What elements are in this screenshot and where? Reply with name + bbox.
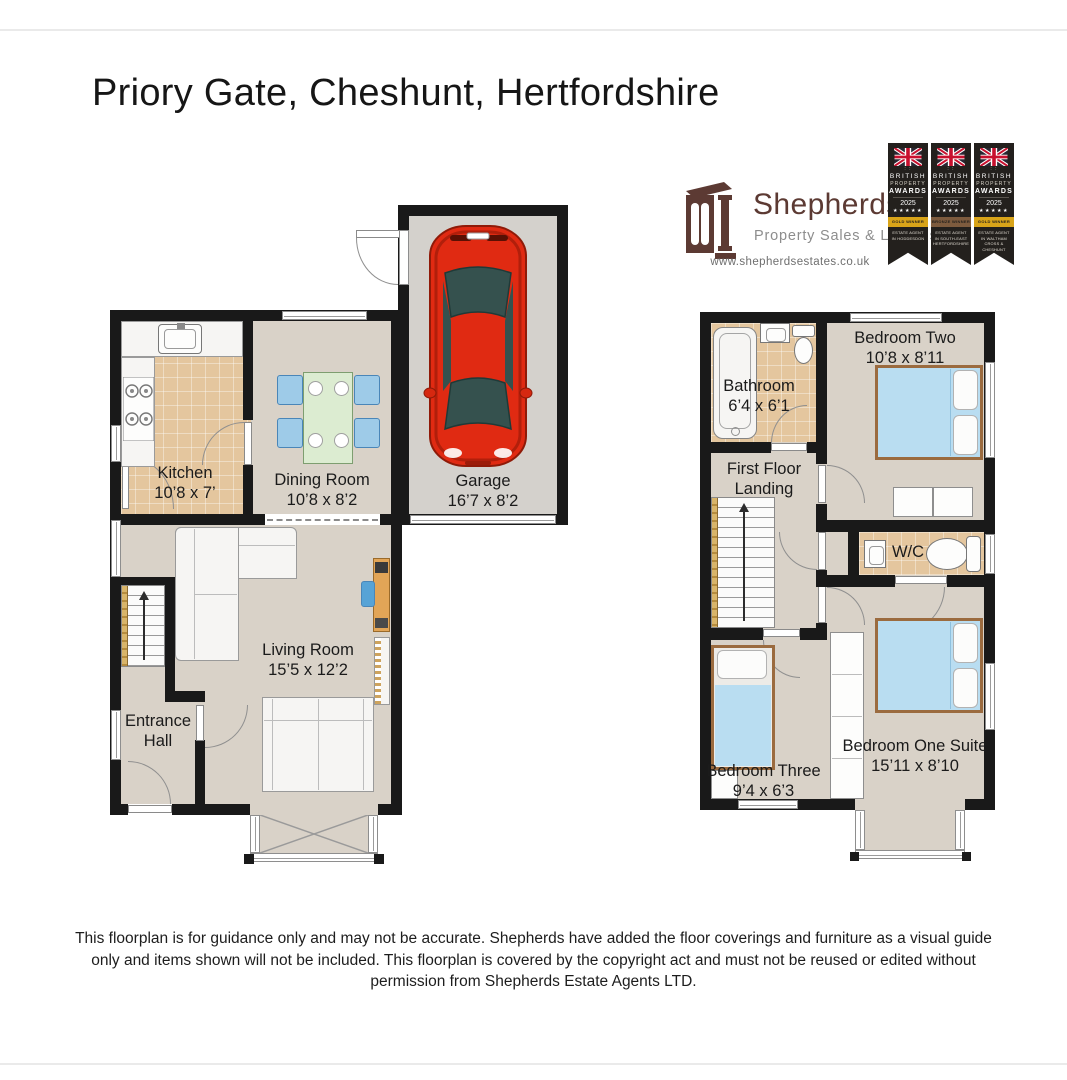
dining-chair	[354, 418, 380, 448]
union-jack-icon	[980, 148, 1008, 166]
door	[771, 443, 807, 451]
ribbon-level: GOLD WINNER	[888, 217, 928, 227]
ribbon-org-line: AWARDS	[888, 188, 928, 195]
toilet-bowl	[794, 337, 813, 364]
wall	[398, 205, 568, 216]
place-setting	[308, 381, 323, 396]
wc-sink	[864, 540, 886, 568]
wall	[700, 628, 763, 640]
window	[985, 534, 995, 574]
ribbon-org-line: AWARDS	[931, 188, 971, 195]
door	[818, 532, 826, 570]
room-dims: 10’8 x 7’	[125, 483, 245, 503]
ribbon-dots: : :	[931, 167, 971, 171]
wall	[700, 312, 995, 323]
staircase	[711, 497, 775, 628]
ribbon-dots: : :	[974, 167, 1014, 171]
ribbon-org-line: BRITISH	[974, 173, 1014, 180]
duvet-fold	[950, 369, 951, 456]
bathroom-label: Bathroom 6’4 x 6’1	[700, 376, 818, 417]
wall	[378, 804, 402, 815]
disclaimer-text: This floorplan is for guidance only and …	[71, 928, 996, 993]
pillow	[953, 415, 978, 455]
bay-window-post	[855, 810, 865, 850]
bottom-divider	[0, 1063, 1067, 1065]
wall	[165, 691, 205, 702]
wall	[850, 852, 859, 861]
bathroom-sink	[760, 323, 790, 343]
sofa-cushion-line	[194, 594, 237, 595]
room-name: Garage	[398, 471, 568, 491]
dining-chair	[277, 418, 303, 448]
door	[244, 422, 252, 465]
room-name: Bedroom Three	[700, 761, 827, 781]
room-name: W/C	[886, 542, 930, 562]
ribbon-region: ESTATE AGENT IN WALTHAM CROSS & CHESHUNT	[974, 230, 1014, 253]
place-setting	[308, 433, 323, 448]
ribbon-level: GOLD WINNER	[974, 217, 1014, 227]
room-name: Bedroom Two	[830, 328, 980, 348]
agency-name: Shepherds	[753, 188, 902, 222]
sink-basin	[766, 328, 786, 342]
place-setting	[334, 433, 349, 448]
bay-window-post	[955, 810, 965, 850]
pillow	[953, 370, 978, 410]
bay-window-sill	[855, 850, 965, 859]
garage-door	[410, 515, 556, 524]
wall	[244, 854, 254, 864]
pillow	[953, 668, 978, 708]
wall	[110, 577, 173, 585]
sofa-cushion-line	[318, 699, 319, 790]
room-dims: 10’8 x 8’11	[830, 348, 980, 368]
pillow	[953, 623, 978, 663]
open-plan-divider	[265, 514, 380, 525]
door	[818, 585, 826, 623]
first-floor-plan: Bathroom 6’4 x 6’1 Bedroom Two 10’8 x 8’…	[700, 312, 1000, 872]
room-dims: 9’4 x 6’3	[700, 781, 827, 801]
entrance-hall-label: Entrance Hall	[112, 711, 204, 752]
room-name: Bathroom	[700, 376, 818, 396]
union-jack-icon	[937, 148, 965, 166]
duvet	[715, 685, 771, 766]
ribbon-org-line: PROPERTY	[888, 181, 928, 187]
door	[763, 629, 800, 637]
union-jack-icon	[894, 148, 922, 166]
window	[282, 311, 367, 320]
ribbon-level: BRONZE WINNER	[931, 217, 971, 227]
door	[356, 230, 400, 238]
desk-equipment	[375, 618, 388, 628]
bedroom-three-label: Bedroom Three 9’4 x 6’3	[700, 761, 827, 802]
sofa	[262, 697, 374, 792]
door-swing	[356, 238, 398, 285]
room-name: Kitchen	[125, 463, 245, 483]
pillow	[717, 650, 767, 679]
room-name: Bedroom One Suite	[840, 736, 990, 756]
bath-drain	[731, 427, 740, 436]
ribbon-stars: ★★★★★	[931, 208, 971, 214]
stair-direction-arrow	[143, 600, 145, 660]
sink-basin	[869, 546, 884, 565]
toilet-cistern	[966, 536, 981, 572]
duvet-fold	[950, 622, 951, 709]
window	[111, 520, 121, 577]
wall	[243, 321, 253, 420]
dining-room-label: Dining Room 10’8 x 8’2	[252, 470, 392, 511]
wc-label: W/C	[886, 542, 930, 562]
bay-window-floor	[855, 799, 965, 850]
wall	[816, 575, 895, 587]
garage-label: Garage 16’7 x 8’2	[398, 471, 568, 512]
room-dims: 16’7 x 8’2	[398, 491, 568, 511]
wall	[800, 628, 827, 640]
ground-floor-plan: Kitchen 10’8 x 7’ Dining Room 10’8 x 8’2…	[110, 205, 570, 867]
living-room-label: Living Room 15’5 x 12’2	[228, 640, 388, 681]
wall	[374, 854, 384, 864]
wall	[172, 804, 250, 815]
car-icon	[423, 221, 533, 471]
window	[850, 313, 942, 322]
ribbon-year: 2025	[893, 197, 923, 207]
ribbon-region: ESTATE AGENT IN HODDESDON	[888, 230, 928, 241]
page-title: Priory Gate, Cheshunt, Hertfordshire	[92, 72, 720, 115]
room-name: Living Room	[228, 640, 388, 660]
wall	[391, 310, 402, 815]
award-ribbons: : : BRITISH PROPERTY AWARDS 2025 ★★★★★ G…	[888, 143, 1014, 265]
ribbon-region: ESTATE AGENT IN SOUTH-EAST HERTFORDSHIRE	[931, 230, 971, 247]
ribbon-year: 2025	[979, 197, 1009, 207]
agency-website: www.shepherdsestates.co.uk	[705, 256, 875, 268]
room-name: Entrance Hall	[112, 711, 204, 752]
bay-window-brace	[260, 815, 368, 853]
kitchen-label: Kitchen 10’8 x 7’	[125, 463, 245, 504]
door	[895, 576, 947, 584]
wall	[816, 520, 995, 532]
bay-window-post	[250, 815, 260, 853]
door	[818, 465, 826, 503]
dresser	[893, 487, 933, 517]
place-setting	[334, 381, 349, 396]
window	[985, 362, 995, 458]
desk-monitor	[375, 562, 388, 573]
floorplan-page: Priory Gate, Cheshunt, Hertfordshire She…	[0, 0, 1067, 1080]
bay-window-sill	[250, 853, 378, 862]
ribbon-org-line: BRITISH	[931, 173, 971, 180]
staircase	[121, 585, 165, 667]
window	[111, 425, 121, 462]
room-name: First Floor Landing	[714, 459, 814, 500]
ribbon-stars: ★★★★★	[888, 208, 928, 214]
sink-faucet	[177, 323, 185, 329]
wall	[110, 804, 128, 815]
stair-rail	[122, 586, 128, 666]
wardrobe-divider	[832, 674, 862, 675]
dresser	[933, 487, 973, 517]
bedroom-two-label: Bedroom Two 10’8 x 8’11	[830, 328, 980, 369]
toilet-bowl	[926, 538, 968, 570]
dining-chair	[354, 375, 380, 405]
stair-direction-arrow	[743, 512, 745, 621]
top-divider	[0, 29, 1067, 31]
room-dims: 15’5 x 12’2	[228, 660, 388, 680]
room-name: Dining Room	[252, 470, 392, 490]
garage-side-door-opening	[399, 230, 409, 285]
shepherds-logo-icon	[684, 177, 736, 259]
award-ribbon-gold-hoddesdon: : : BRITISH PROPERTY AWARDS 2025 ★★★★★ G…	[888, 143, 928, 265]
stove-icon	[123, 377, 154, 441]
wall	[165, 577, 175, 693]
front-door	[128, 805, 172, 813]
sink-basin	[164, 329, 196, 349]
kitchen-sink	[158, 324, 202, 354]
award-ribbon-bronze-sehertfordshire: : : BRITISH PROPERTY AWARDS 2025 ★★★★★ B…	[931, 143, 971, 265]
wall	[700, 442, 771, 453]
stair-rail	[712, 498, 718, 627]
bedroom-one-label: Bedroom One Suite 15’11 x 8’10	[840, 736, 990, 777]
ribbon-org-line: PROPERTY	[974, 181, 1014, 187]
ribbon-org-line: PROPERTY	[931, 181, 971, 187]
sofa-armrest-line	[272, 699, 273, 790]
room-dims: 15’11 x 8’10	[840, 756, 990, 776]
bay-window-post	[368, 815, 378, 853]
window	[985, 663, 995, 730]
wall	[121, 514, 265, 525]
ribbon-org-line: AWARDS	[974, 188, 1014, 195]
award-ribbon-gold-walthamcross: : : BRITISH PROPERTY AWARDS 2025 ★★★★★ G…	[974, 143, 1014, 265]
landing-label: First Floor Landing	[714, 459, 814, 500]
toilet-cistern	[792, 325, 815, 337]
ribbon-dots: : :	[888, 167, 928, 171]
ribbon-year: 2025	[936, 197, 966, 207]
dining-chair	[277, 375, 303, 405]
room-dims: 6’4 x 6’1	[700, 396, 818, 416]
ribbon-org-line: BRITISH	[888, 173, 928, 180]
ribbon-stars: ★★★★★	[974, 208, 1014, 214]
sofa-armrest-line	[363, 699, 364, 790]
wall	[965, 799, 995, 810]
wardrobe-divider	[832, 716, 862, 717]
wall	[962, 852, 971, 861]
room-dims: 10’8 x 8’2	[252, 490, 392, 510]
wall	[947, 575, 995, 587]
wall	[380, 514, 402, 525]
desk-chair	[361, 581, 375, 607]
